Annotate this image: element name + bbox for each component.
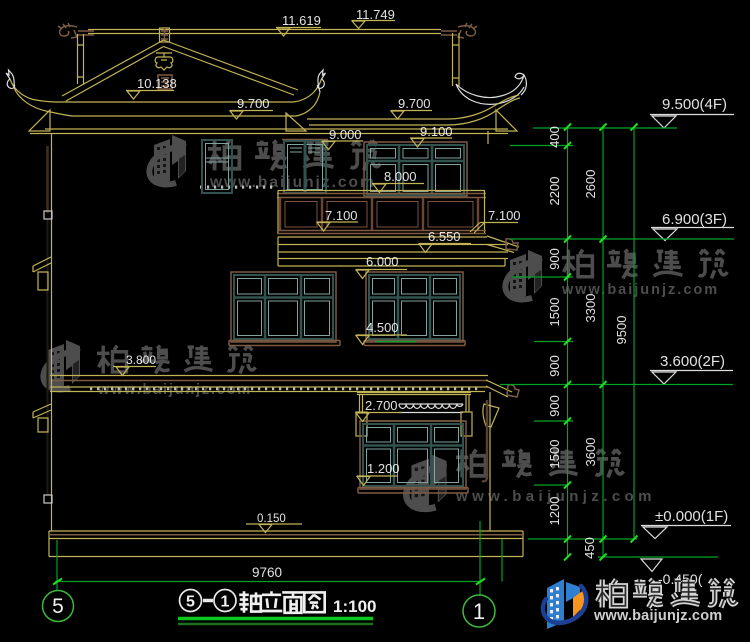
svg-text:1:100: 1:100 bbox=[333, 597, 376, 616]
svg-text:900: 900 bbox=[547, 355, 562, 377]
svg-text:11.619: 11.619 bbox=[282, 13, 321, 28]
svg-text:0.150: 0.150 bbox=[257, 513, 286, 525]
svg-text:3300: 3300 bbox=[583, 294, 598, 323]
svg-text:±0.000(1F): ±0.000(1F) bbox=[655, 508, 728, 525]
svg-text:900: 900 bbox=[547, 395, 562, 417]
svg-text:1: 1 bbox=[221, 594, 230, 611]
svg-text:10.138: 10.138 bbox=[137, 76, 177, 91]
svg-text:www.baijunjz.com: www.baijunjz.com bbox=[209, 174, 376, 191]
svg-text:400: 400 bbox=[547, 126, 562, 148]
svg-text:9.000: 9.000 bbox=[329, 127, 362, 142]
svg-text:6.550: 6.550 bbox=[428, 229, 461, 244]
svg-text:www.baijunjz.com: www.baijunjz.com bbox=[593, 608, 722, 624]
svg-text:1.200: 1.200 bbox=[367, 461, 400, 476]
svg-text:9.500(4F): 9.500(4F) bbox=[662, 96, 727, 113]
svg-text:11.749: 11.749 bbox=[356, 7, 395, 22]
svg-text:9.700: 9.700 bbox=[398, 96, 431, 111]
svg-text:1500: 1500 bbox=[547, 298, 562, 327]
svg-text:450: 450 bbox=[582, 537, 597, 559]
svg-text:5: 5 bbox=[186, 594, 195, 611]
svg-text:900: 900 bbox=[547, 248, 562, 270]
svg-text:1200: 1200 bbox=[547, 497, 562, 526]
svg-text:2.700: 2.700 bbox=[365, 398, 398, 413]
svg-text:6.900(3F): 6.900(3F) bbox=[662, 211, 727, 228]
svg-text:3600: 3600 bbox=[583, 438, 598, 467]
svg-text:7.100: 7.100 bbox=[325, 208, 358, 223]
svg-text:6.000: 6.000 bbox=[366, 254, 399, 269]
svg-text:7.100: 7.100 bbox=[488, 208, 521, 223]
svg-text:2600: 2600 bbox=[583, 170, 598, 199]
svg-text:5: 5 bbox=[52, 595, 64, 618]
svg-text:9760: 9760 bbox=[252, 565, 282, 580]
svg-text:3.800: 3.800 bbox=[126, 353, 156, 367]
svg-text:4.500: 4.500 bbox=[366, 320, 399, 335]
svg-text:2200: 2200 bbox=[547, 177, 562, 206]
svg-text:1: 1 bbox=[473, 599, 485, 624]
svg-text:9.700: 9.700 bbox=[237, 96, 270, 111]
svg-text:9.100: 9.100 bbox=[420, 124, 453, 139]
svg-text:1500: 1500 bbox=[547, 440, 562, 469]
svg-text:9500: 9500 bbox=[614, 316, 629, 345]
svg-text:8.000: 8.000 bbox=[384, 169, 417, 184]
svg-text:3.600(2F): 3.600(2F) bbox=[660, 353, 725, 370]
